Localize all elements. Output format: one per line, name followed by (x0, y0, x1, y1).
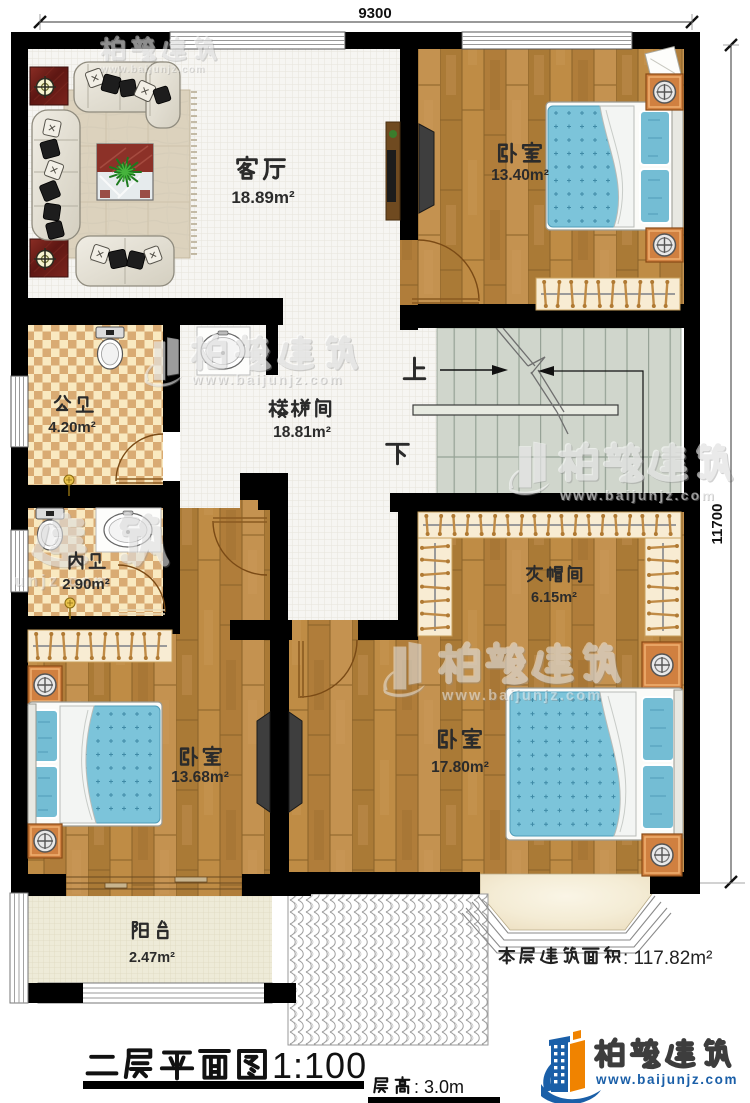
svg-text:17.80m²: 17.80m² (431, 759, 489, 776)
svg-text:: 117.82m²: : 117.82m² (623, 948, 712, 969)
svg-text:2.90m²: 2.90m² (62, 576, 110, 593)
svg-text:www.baijunjz.com: www.baijunjz.com (191, 372, 344, 387)
svg-text:: 3.0m: : 3.0m (414, 1077, 464, 1097)
svg-text:18.81m²: 18.81m² (273, 424, 331, 441)
svg-text:13.68m²: 13.68m² (171, 769, 229, 786)
svg-text:6.15m²: 6.15m² (531, 590, 577, 606)
svg-text:www.baijunjz.com: www.baijunjz.com (99, 64, 206, 75)
svg-text:1:100: 1:100 (272, 1045, 367, 1086)
svg-text:www.baijunjz.com: www.baijunjz.com (595, 1072, 738, 1087)
svg-text:4.20m²: 4.20m² (48, 419, 96, 436)
svg-text:9300: 9300 (358, 5, 391, 22)
svg-text:2.47m²: 2.47m² (129, 950, 175, 966)
svg-text:www.baijunjz.com: www.baijunjz.com (441, 688, 602, 704)
svg-text:13.40m²: 13.40m² (491, 167, 549, 184)
svg-text:18.89m²: 18.89m² (231, 188, 295, 207)
svg-text:www.baijunjz.com: www.baijunjz.com (559, 487, 716, 503)
svg-text:11700: 11700 (709, 504, 726, 545)
